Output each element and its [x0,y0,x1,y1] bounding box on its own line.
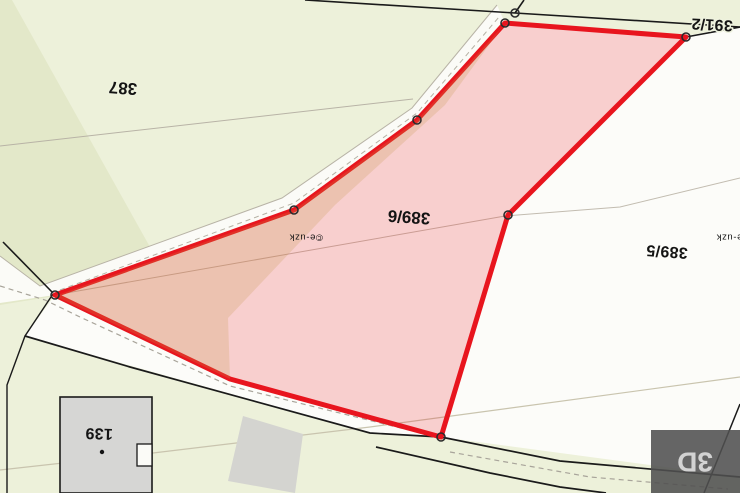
view-3d-button[interactable]: 3D [651,430,740,493]
building-label-139: 139 [85,424,113,442]
cadastral-map-viewport[interactable]: 387 391/2 389/6 389/5 139 ©e-uzk ©e-uzk … [0,0,740,493]
address-point-139 [100,450,104,454]
parcel-label-391-2: 391/2 [691,14,733,33]
watermark-text: ©e-uzk [289,232,323,243]
building-139-notch [137,444,152,466]
parcel-label-387: 387 [108,78,138,99]
parcel-label-389-5: 389/5 [646,241,689,261]
watermark-text: ©e-uzk [716,232,740,243]
parcel-label-389-6: 389/6 [387,206,431,228]
view-3d-button-label: 3D [677,447,713,478]
